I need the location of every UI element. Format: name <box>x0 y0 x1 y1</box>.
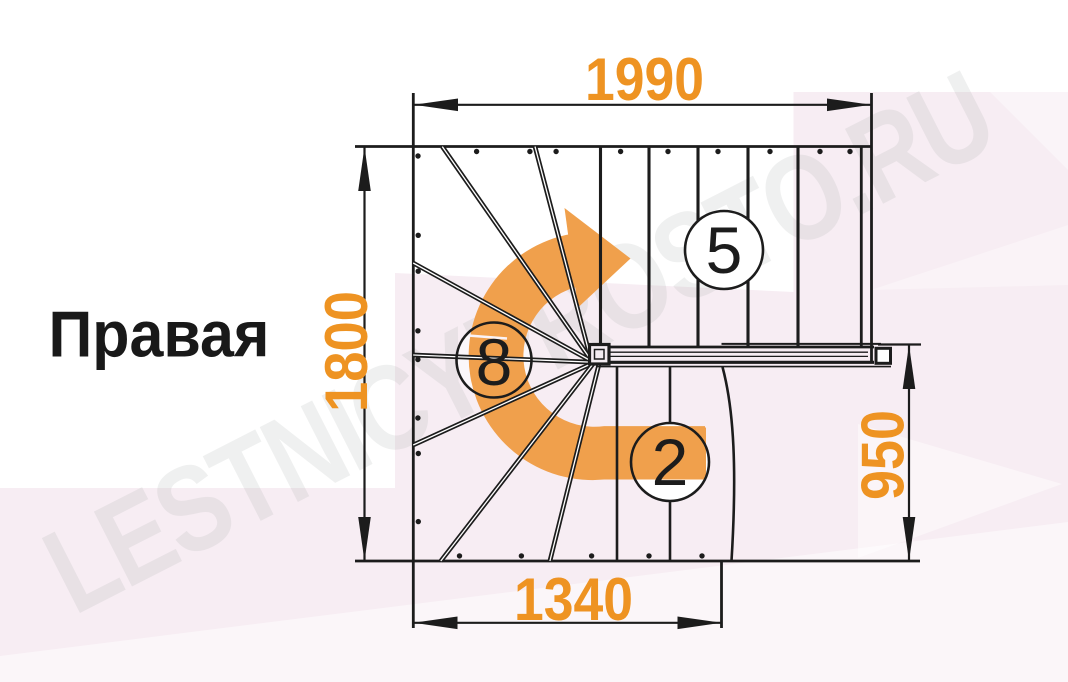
svg-text:5: 5 <box>706 213 743 287</box>
svg-text:2: 2 <box>652 425 689 499</box>
svg-text:Правая: Правая <box>49 298 270 371</box>
svg-text:1990: 1990 <box>585 46 704 113</box>
svg-text:1340: 1340 <box>514 566 633 633</box>
svg-text:8: 8 <box>476 325 513 399</box>
svg-text:1800: 1800 <box>313 291 380 412</box>
svg-text:950: 950 <box>850 410 917 500</box>
